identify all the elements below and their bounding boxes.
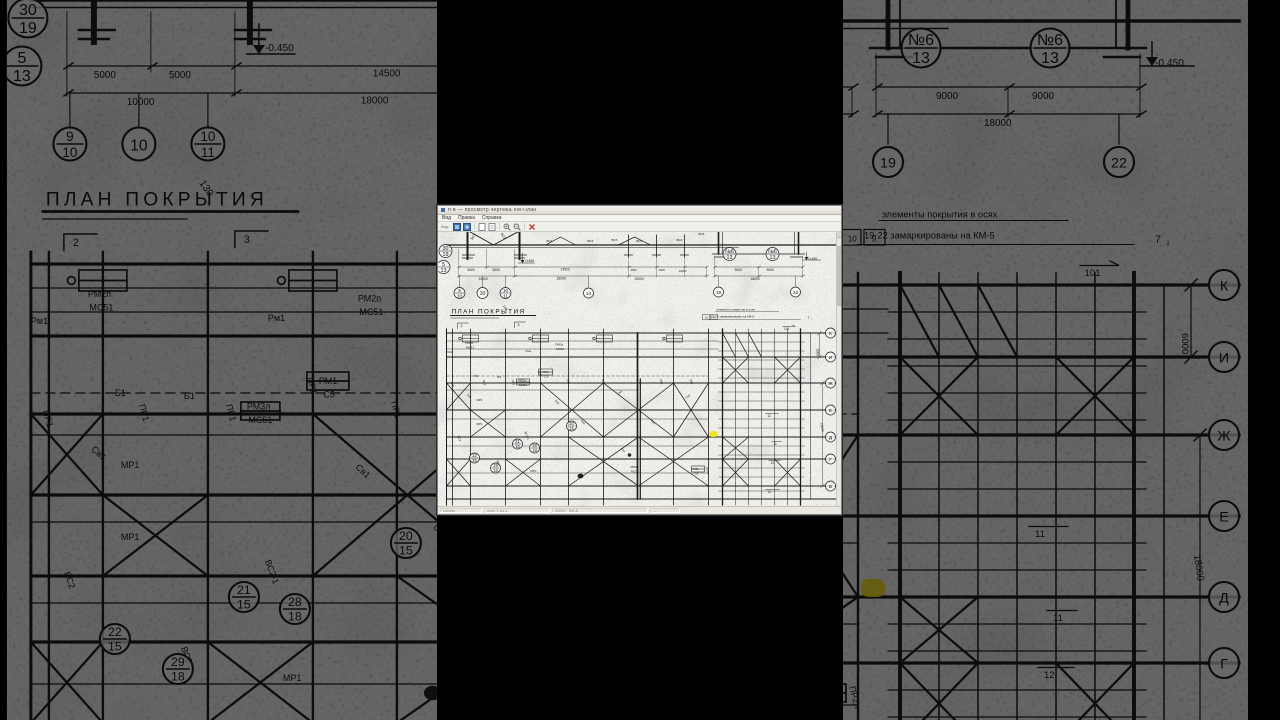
toolbar-separator: [499, 223, 500, 230]
title-bar: п·в — просмотр чертежа КМ-План: [438, 206, 841, 215]
page-outline-icon[interactable]: [478, 223, 486, 231]
thumbnail-blue-icon[interactable]: [453, 223, 461, 231]
background-blueprint-right: [843, 0, 1280, 720]
window-title: п·в — просмотр чертежа КМ-План: [448, 208, 536, 213]
status-segment: 100% · КМ-5: [552, 508, 648, 513]
center-video-strip: п·в — просмотр чертежа КМ-План Вид Правк…: [437, 0, 843, 720]
zoom-in-icon[interactable]: [503, 223, 511, 231]
fit-page-blue-icon[interactable]: [463, 223, 471, 231]
scrollbar-thumb[interactable]: [837, 246, 841, 306]
status-segment: —: [650, 508, 680, 513]
scrollbar-up-arrow[interactable]: [837, 232, 841, 238]
menu-view[interactable]: Вид: [442, 216, 451, 221]
menu-help[interactable]: Справка: [482, 216, 502, 221]
drawing-canvas[interactable]: [438, 232, 836, 508]
status-bar: готово лист 1 из 1 100% · КМ-5 —: [438, 506, 841, 514]
toolbar-label: Вид:: [441, 224, 449, 229]
page-outline-2-icon[interactable]: [488, 223, 496, 231]
toolbar: Вид:: [438, 222, 841, 232]
zoom-out-icon[interactable]: [513, 223, 521, 231]
menu-edit[interactable]: Правка: [458, 216, 475, 221]
status-segment: готово: [440, 508, 482, 513]
vertical-scrollbar[interactable]: [836, 232, 841, 508]
background-blueprint-left: [0, 0, 437, 720]
status-segment: лист 1 из 1: [484, 508, 550, 513]
app-icon: [441, 208, 445, 212]
video-frame: ПЛАН ПОКРЫТИЯ элементы покрытия в осях 1…: [0, 0, 1280, 720]
toolbar-separator: [474, 223, 475, 230]
menu-bar: Вид Правка Справка: [438, 215, 841, 222]
toolbar-separator: [524, 223, 525, 230]
viewer-app-window: п·в — просмотр чертежа КМ-План Вид Правк…: [437, 205, 842, 515]
close-red-icon[interactable]: [528, 223, 536, 231]
